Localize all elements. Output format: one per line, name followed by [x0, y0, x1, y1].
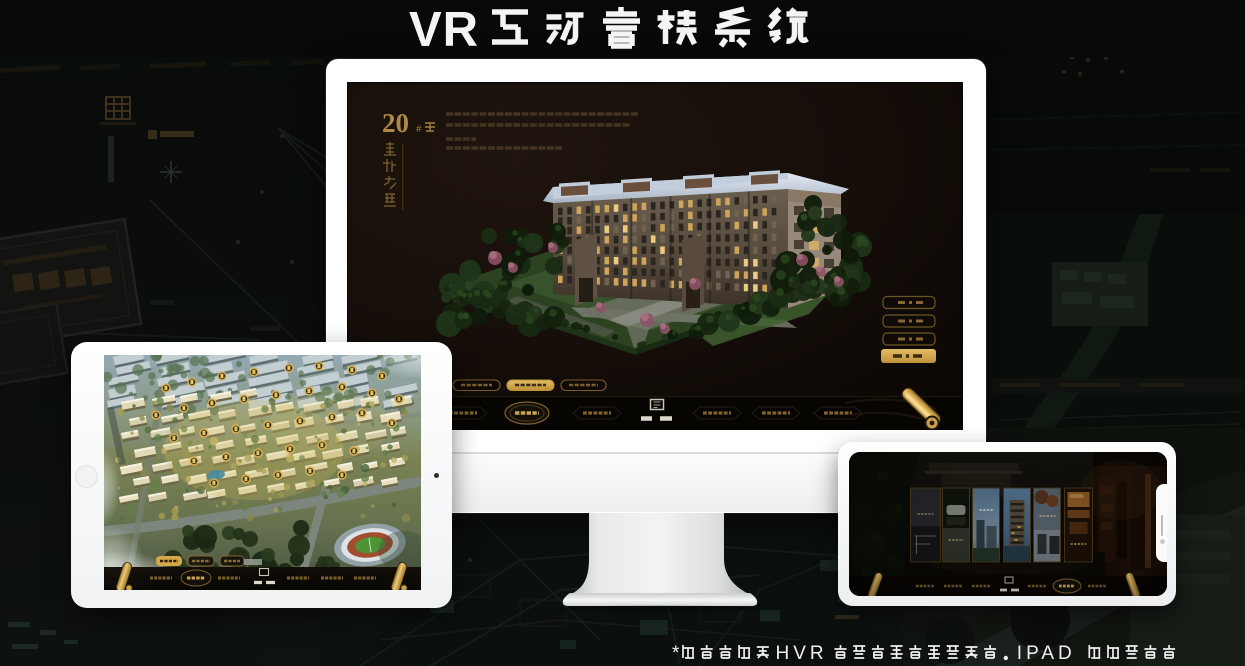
svg-text:HVR: HVR	[776, 643, 828, 664]
svg-text:VR: VR	[409, 3, 479, 57]
svg-text:IPAD: IPAD	[1017, 643, 1076, 664]
svg-text:#: #	[416, 123, 422, 135]
svg-text:20: 20	[382, 108, 409, 138]
svg-text:*: *	[672, 643, 680, 664]
